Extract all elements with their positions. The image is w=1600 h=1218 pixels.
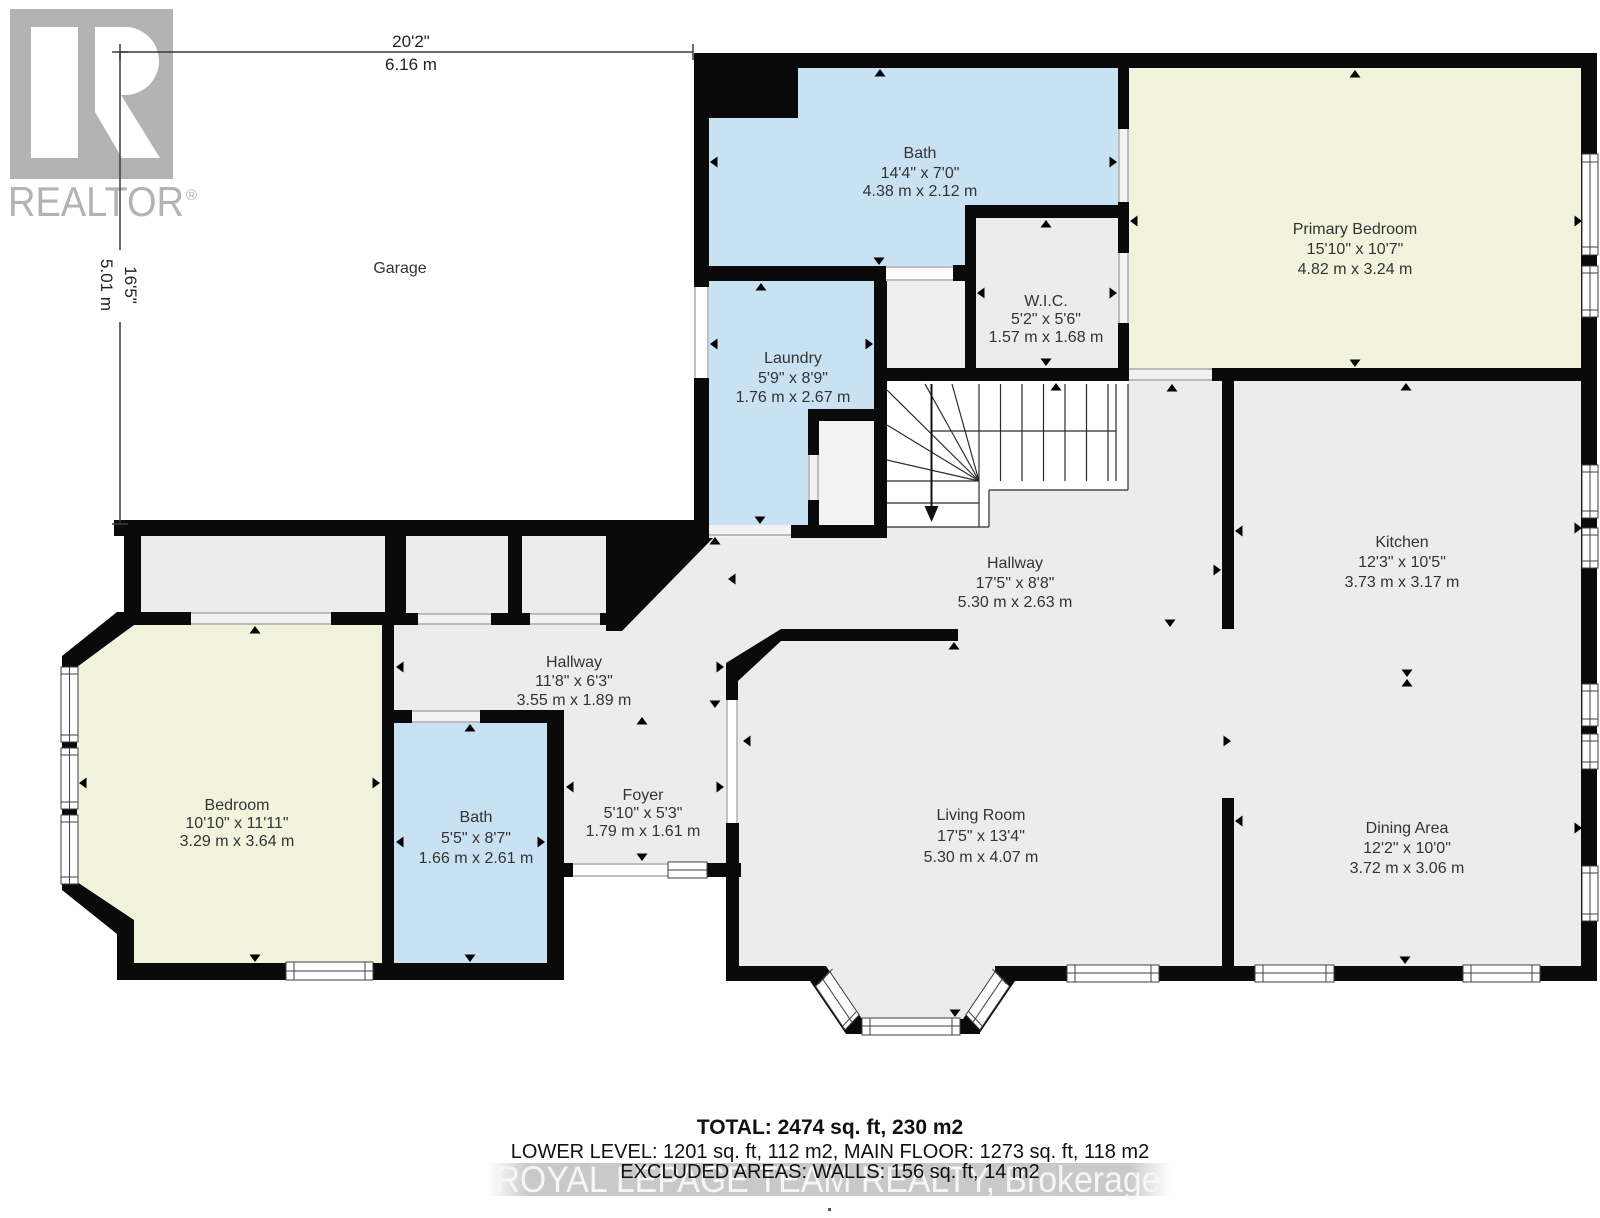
svg-text:Garage: Garage bbox=[373, 260, 426, 277]
svg-text:15'10" x 10'7": 15'10" x 10'7" bbox=[1307, 241, 1404, 258]
svg-text:W.I.C.: W.I.C. bbox=[1024, 293, 1068, 310]
svg-text:6.16 m: 6.16 m bbox=[385, 55, 437, 74]
svg-text:5.30 m x 4.07 m: 5.30 m x 4.07 m bbox=[924, 849, 1039, 866]
svg-text:4.82 m x 3.24 m: 4.82 m x 3.24 m bbox=[1298, 261, 1413, 278]
svg-text:Bath: Bath bbox=[904, 145, 937, 162]
svg-text:12'2" x 10'0": 12'2" x 10'0" bbox=[1363, 840, 1451, 857]
svg-text:1.76 m x 2.67 m: 1.76 m x 2.67 m bbox=[736, 389, 851, 406]
svg-text:®: ® bbox=[186, 187, 197, 204]
svg-text:5'9" x 8'9": 5'9" x 8'9" bbox=[758, 370, 828, 387]
svg-text:5'10" x 5'3": 5'10" x 5'3" bbox=[604, 805, 683, 822]
svg-text:3.72 m x 3.06 m: 3.72 m x 3.06 m bbox=[1350, 860, 1465, 877]
svg-text:4.38 m x 2.12 m: 4.38 m x 2.12 m bbox=[863, 183, 978, 200]
svg-text:Foyer: Foyer bbox=[623, 787, 665, 804]
svg-text:1.57 m x 1.68 m: 1.57 m x 1.68 m bbox=[989, 329, 1104, 346]
svg-text:1.66 m x 2.61 m: 1.66 m x 2.61 m bbox=[419, 850, 534, 867]
svg-text:5'5" x 8'7": 5'5" x 8'7" bbox=[441, 830, 511, 847]
svg-text:Kitchen: Kitchen bbox=[1375, 534, 1428, 551]
svg-text:17'5" x 13'4": 17'5" x 13'4" bbox=[937, 828, 1025, 845]
svg-text:Bath: Bath bbox=[460, 809, 493, 826]
svg-text:Dining Area: Dining Area bbox=[1366, 820, 1449, 837]
svg-text:Hallway: Hallway bbox=[987, 555, 1043, 572]
svg-text:11'8" x 6'3": 11'8" x 6'3" bbox=[535, 673, 613, 690]
svg-text:LOWER LEVEL: 1201 sq. ft, 112: LOWER LEVEL: 1201 sq. ft, 112 m2, MAIN F… bbox=[511, 1141, 1149, 1163]
svg-text:17'5" x 8'8": 17'5" x 8'8" bbox=[976, 575, 1055, 592]
svg-text:3.29 m x 3.64 m: 3.29 m x 3.64 m bbox=[180, 833, 295, 850]
svg-text:Primary Bedroom: Primary Bedroom bbox=[1293, 221, 1417, 238]
svg-text:12'3" x 10'5": 12'3" x 10'5" bbox=[1358, 554, 1446, 571]
svg-text:3.73 m x 3.17 m: 3.73 m x 3.17 m bbox=[1345, 574, 1460, 591]
svg-text:REALTOR: REALTOR bbox=[8, 178, 184, 225]
svg-text:EXCLUDED AREAS: WALLS: 156 sq.: EXCLUDED AREAS: WALLS: 156 sq. ft, 14 m2 bbox=[620, 1161, 1039, 1183]
svg-text:Living Room: Living Room bbox=[937, 807, 1026, 824]
svg-text:16'5": 16'5" bbox=[121, 266, 140, 304]
svg-text:Hallway: Hallway bbox=[546, 654, 602, 671]
svg-text:5.01 m: 5.01 m bbox=[97, 259, 116, 311]
svg-text:20'2": 20'2" bbox=[392, 32, 430, 51]
svg-text:10'10" x 11'11": 10'10" x 11'11" bbox=[185, 815, 288, 832]
svg-text:Laundry: Laundry bbox=[764, 350, 822, 367]
svg-text:Bedroom: Bedroom bbox=[205, 797, 270, 814]
svg-text:5'2" x 5'6": 5'2" x 5'6" bbox=[1011, 311, 1081, 328]
svg-text:14'4" x 7'0": 14'4" x 7'0" bbox=[881, 165, 960, 182]
svg-text:5.30 m x 2.63 m: 5.30 m x 2.63 m bbox=[958, 594, 1073, 611]
svg-text:3.55 m x 1.89 m: 3.55 m x 1.89 m bbox=[517, 692, 632, 709]
svg-text:TOTAL: 2474 sq. ft, 230 m2: TOTAL: 2474 sq. ft, 230 m2 bbox=[697, 1116, 963, 1139]
svg-text:1.79 m x 1.61 m: 1.79 m x 1.61 m bbox=[586, 823, 701, 840]
